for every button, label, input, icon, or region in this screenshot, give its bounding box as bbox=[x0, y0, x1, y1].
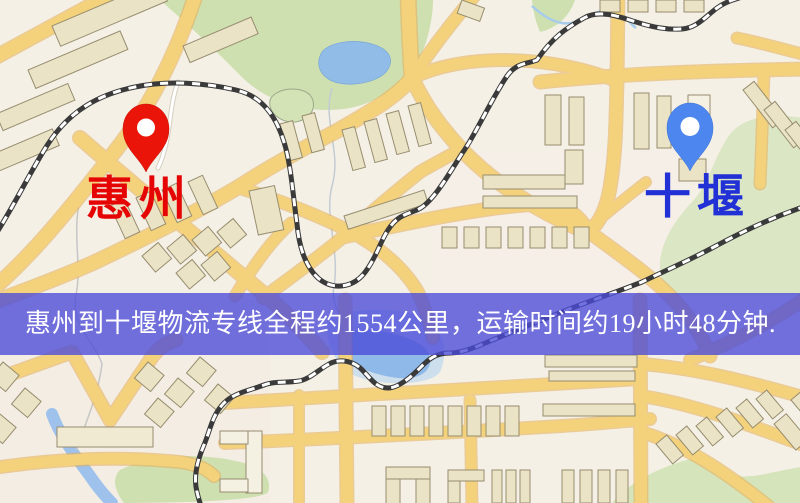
origin-city-label: 惠州 bbox=[86, 177, 192, 224]
destination-pin[interactable] bbox=[665, 99, 715, 176]
route-info-text: 惠州到十堰物流专线全程约1554公里，运输时间约19小时48分钟. bbox=[25, 309, 776, 338]
route-info-banner: 惠州到十堰物流专线全程约1554公里，运输时间约19小时48分钟. bbox=[0, 293, 800, 355]
map-view: 惠州 十堰 惠州到十堰物流专线全程约1554公里，运输时间约19小时48分钟. bbox=[0, 0, 800, 503]
red-marker-icon bbox=[121, 100, 171, 172]
origin-pin[interactable] bbox=[121, 100, 171, 177]
destination-city-label: 十堰 bbox=[644, 175, 750, 222]
blue-marker-icon bbox=[665, 99, 715, 171]
map-canvas bbox=[0, 0, 800, 503]
